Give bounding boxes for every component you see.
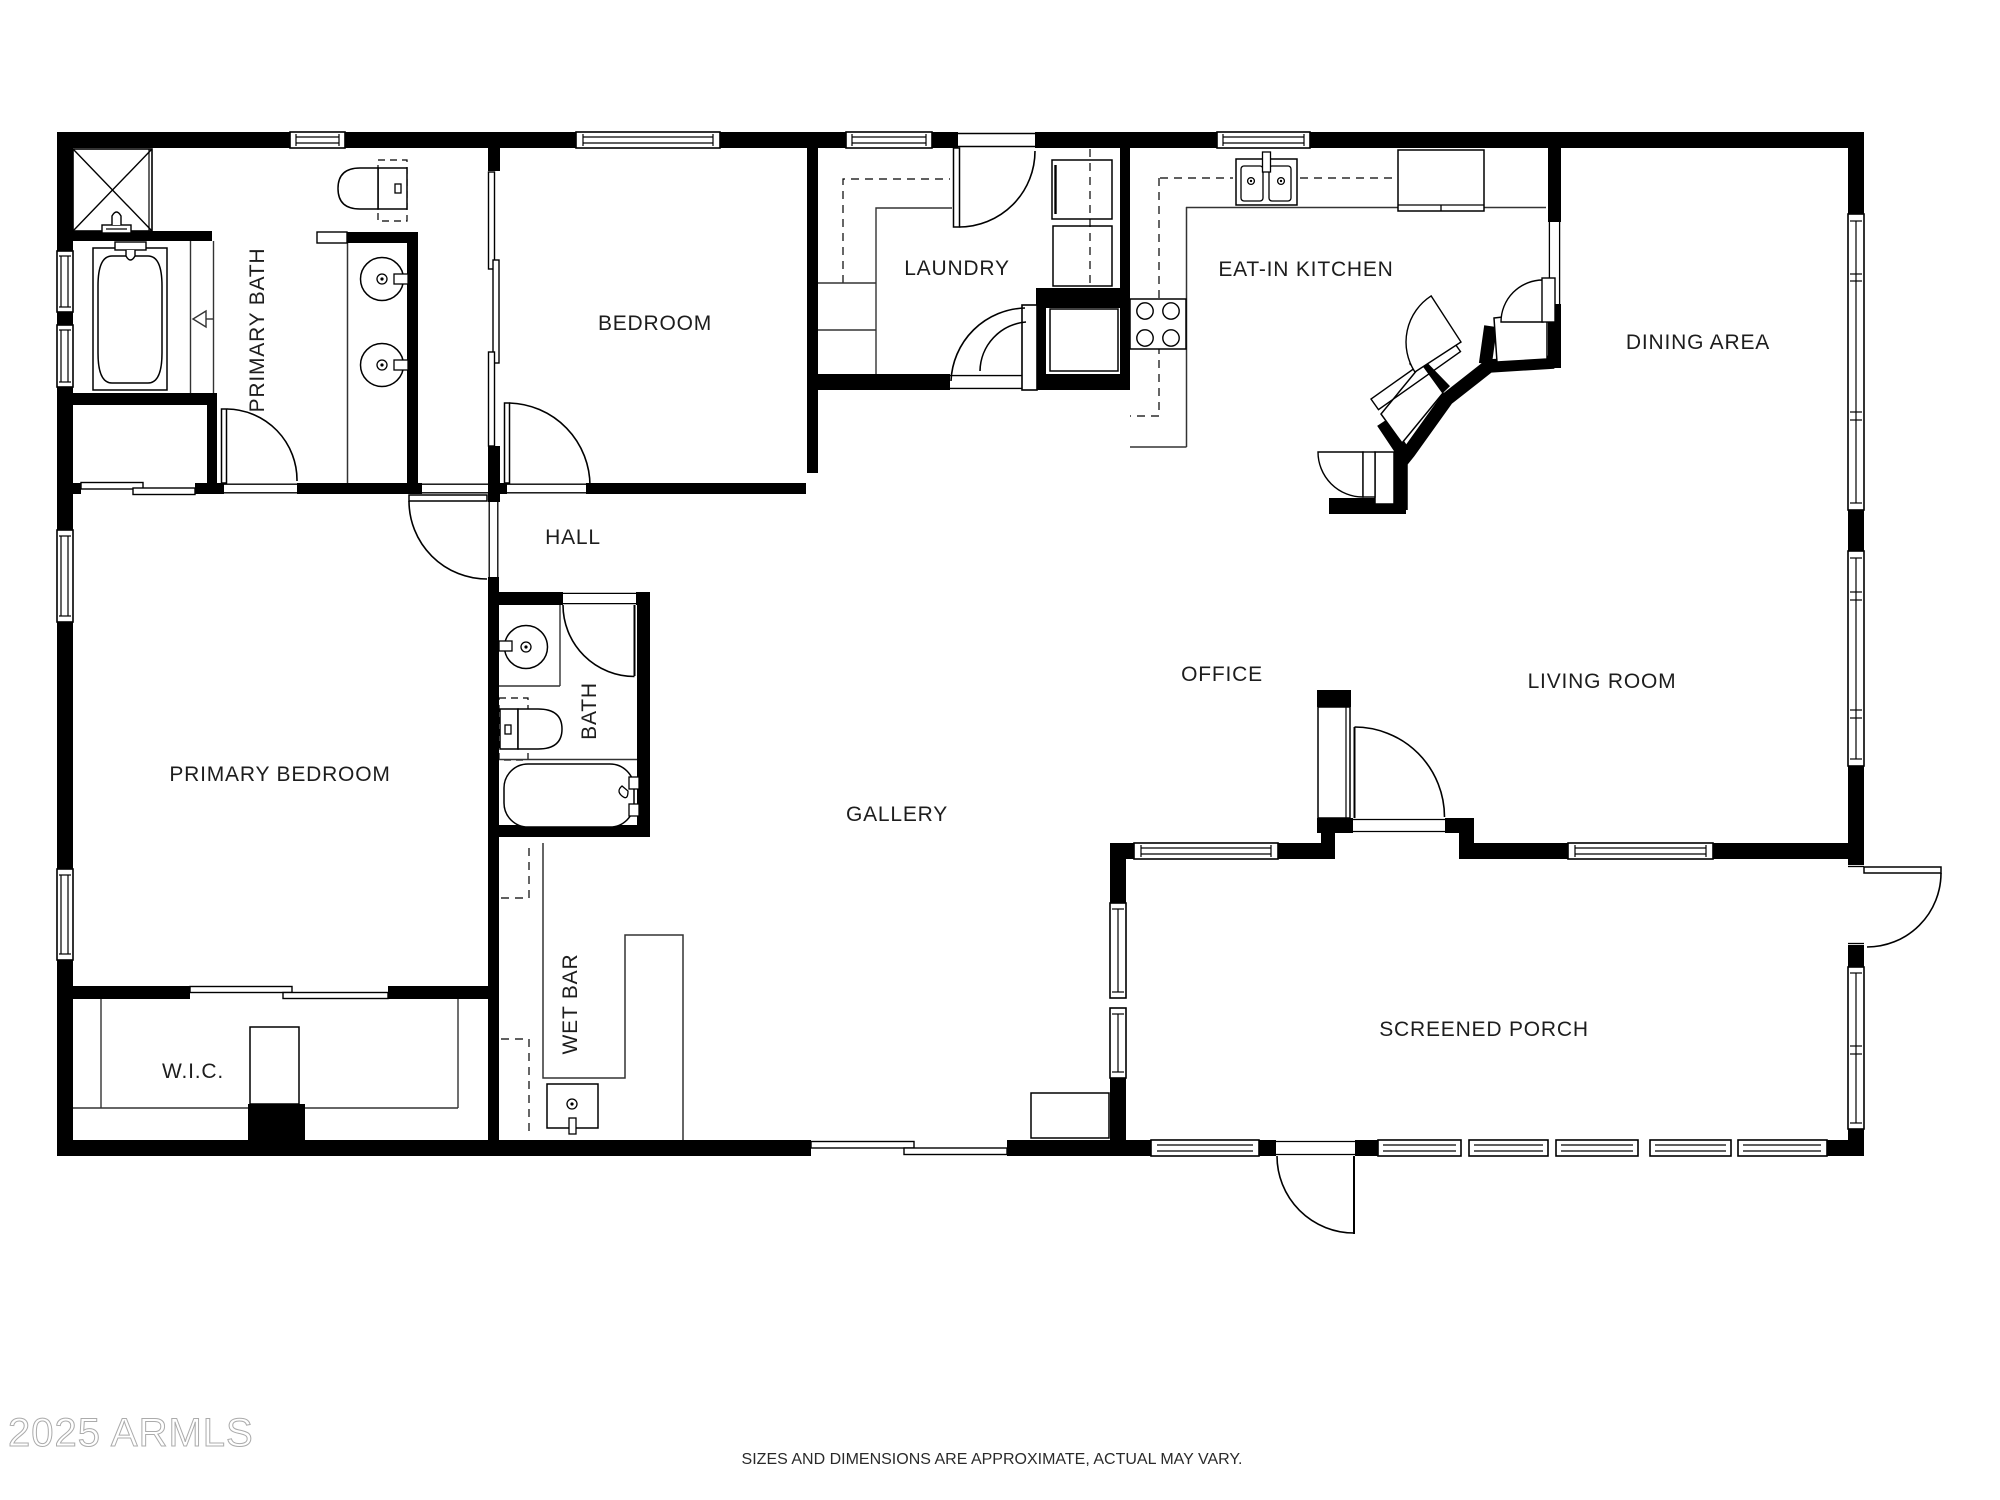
svg-text:OFFICE: OFFICE xyxy=(1181,663,1263,686)
svg-text:BATH: BATH xyxy=(578,682,601,740)
svg-text:PRIMARY BEDROOM: PRIMARY BEDROOM xyxy=(169,763,390,786)
svg-text:WET BAR: WET BAR xyxy=(559,954,582,1055)
svg-text:SCREENED PORCH: SCREENED PORCH xyxy=(1379,1018,1589,1041)
svg-text:GALLERY: GALLERY xyxy=(846,803,948,826)
svg-text:EAT-IN KITCHEN: EAT-IN KITCHEN xyxy=(1218,258,1393,281)
svg-text:LIVING ROOM: LIVING ROOM xyxy=(1528,670,1677,693)
svg-text:PRIMARY BATH: PRIMARY BATH xyxy=(246,248,269,413)
svg-text:2025 ARMLS: 2025 ARMLS xyxy=(8,1411,254,1455)
svg-text:LAUNDRY: LAUNDRY xyxy=(904,257,1010,280)
svg-text:W.I.C.: W.I.C. xyxy=(162,1060,224,1083)
svg-text:SIZES AND DIMENSIONS ARE APPRO: SIZES AND DIMENSIONS ARE APPROXIMATE, AC… xyxy=(742,1451,1243,1468)
svg-text:HALL: HALL xyxy=(545,526,601,549)
svg-text:BEDROOM: BEDROOM xyxy=(598,312,712,335)
svg-text:DINING AREA: DINING AREA xyxy=(1626,331,1770,354)
